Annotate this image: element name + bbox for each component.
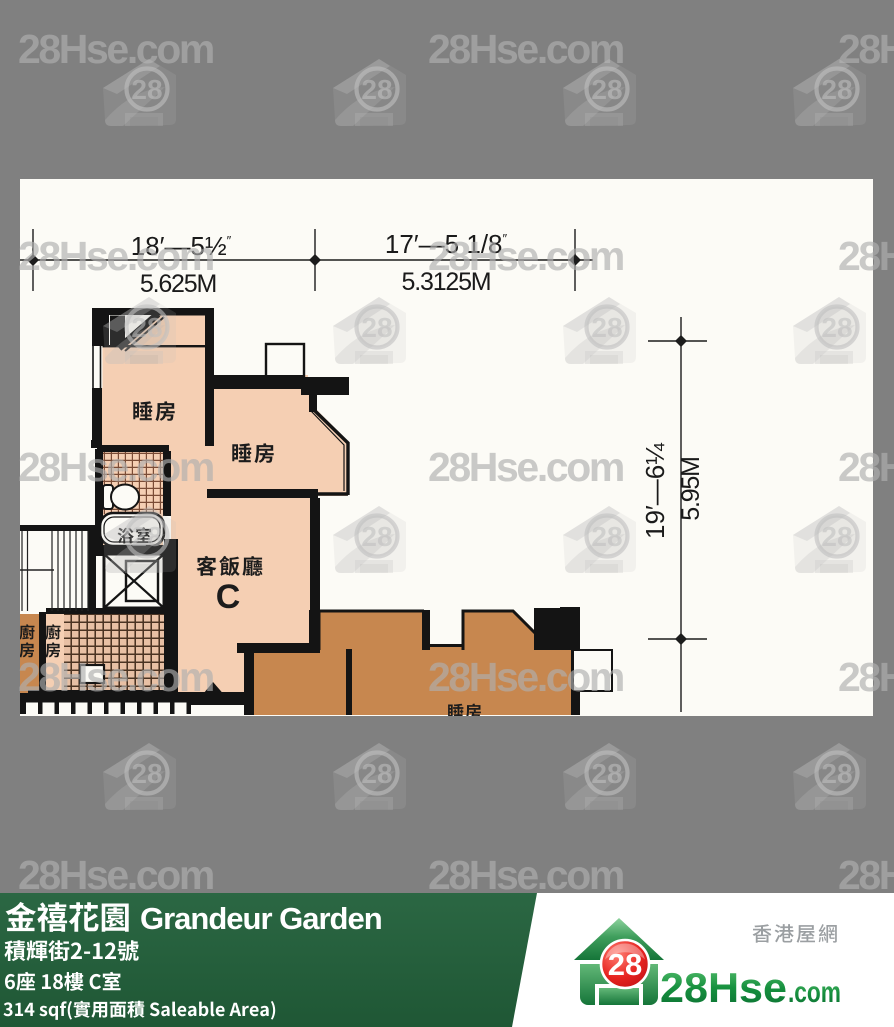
svg-text:28: 28: [361, 521, 392, 552]
svg-text:28: 28: [821, 521, 852, 552]
svg-text:28: 28: [591, 74, 622, 105]
svg-text:28: 28: [131, 521, 162, 552]
svg-text:28: 28: [591, 312, 622, 343]
svg-text:28: 28: [821, 312, 852, 343]
svg-text:28: 28: [131, 74, 162, 105]
svg-text:28: 28: [131, 312, 162, 343]
svg-text:28: 28: [591, 758, 622, 789]
svg-text:28: 28: [591, 521, 622, 552]
svg-text:28: 28: [361, 312, 392, 343]
svg-text:28: 28: [821, 74, 852, 105]
svg-text:28: 28: [361, 74, 392, 105]
svg-text:28: 28: [821, 758, 852, 789]
svg-text:28: 28: [361, 758, 392, 789]
svg-text:28: 28: [131, 758, 162, 789]
